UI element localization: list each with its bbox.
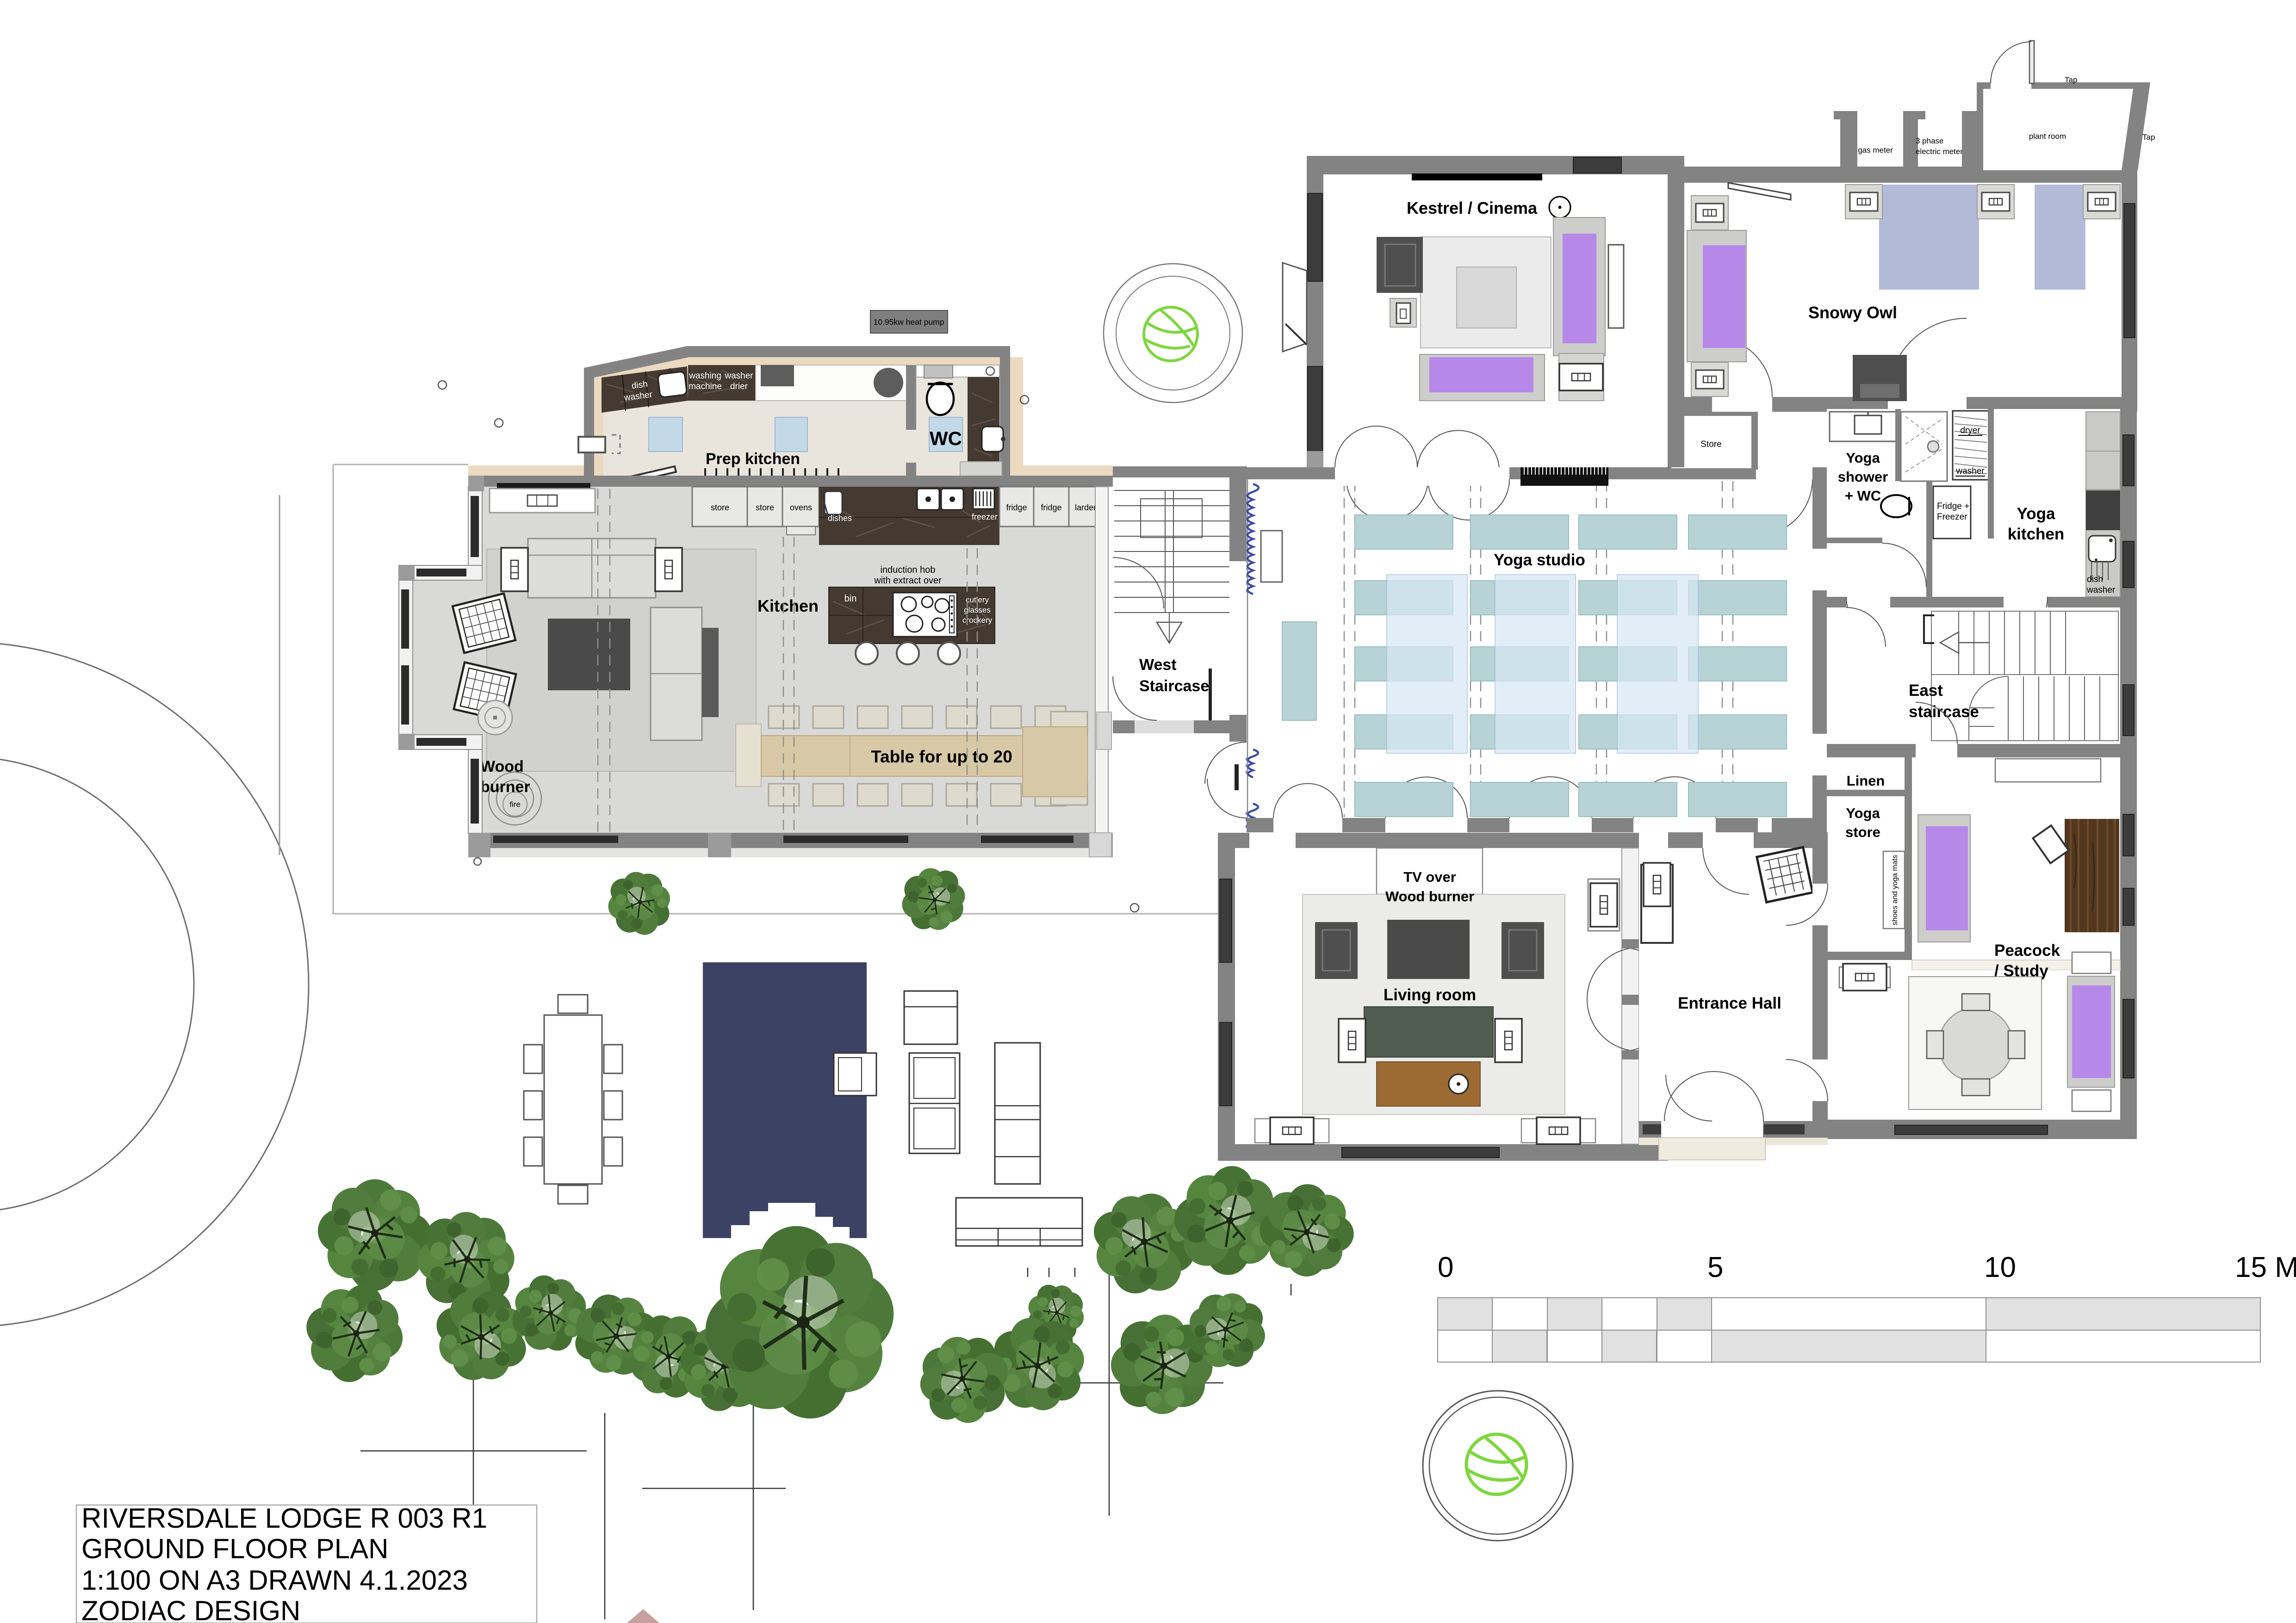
svg-text:Wood burner: Wood burner	[1385, 888, 1474, 904]
svg-text:drier: drier	[730, 382, 748, 391]
svg-text:washer: washer	[724, 371, 753, 381]
svg-text:Yoga: Yoga	[2017, 505, 2056, 523]
svg-text:Prep kitchen: Prep kitchen	[706, 450, 800, 468]
svg-text:freezer: freezer	[972, 512, 998, 521]
svg-text:Fridge +: Fridge +	[1937, 502, 1969, 511]
svg-text:3 phase: 3 phase	[1916, 136, 1944, 145]
svg-text:East: East	[1909, 681, 1943, 700]
svg-text:dryer: dryer	[1960, 426, 1980, 435]
svg-text:burner: burner	[480, 778, 530, 796]
svg-text:Snowy Owl: Snowy Owl	[1808, 303, 1897, 322]
svg-text:fire: fire	[509, 800, 521, 809]
svg-text:ZODIAC DESIGN: ZODIAC DESIGN	[81, 1595, 300, 1623]
svg-text:West: West	[1139, 656, 1177, 674]
svg-text:bin: bin	[844, 594, 857, 604]
svg-text:fridge: fridge	[1006, 503, 1027, 512]
svg-text:washer: washer	[1955, 466, 1985, 476]
svg-text:RIVERSDALE LODGE R 003 R1: RIVERSDALE LODGE R 003 R1	[81, 1503, 487, 1534]
svg-text:Yoga: Yoga	[1846, 805, 1880, 821]
svg-text:Kitchen: Kitchen	[757, 596, 819, 615]
svg-text:Tap: Tap	[2142, 133, 2155, 142]
svg-text:machine: machine	[689, 382, 722, 391]
svg-text:5: 5	[1707, 1251, 1723, 1283]
svg-text:shower: shower	[1838, 469, 1888, 485]
svg-text:gas meter: gas meter	[1858, 146, 1893, 155]
svg-text:store: store	[711, 503, 729, 512]
svg-text:Yoga: Yoga	[1846, 450, 1880, 466]
svg-text:staircase: staircase	[1909, 703, 1979, 721]
svg-text:larder: larder	[1075, 503, 1096, 512]
svg-text:fridge: fridge	[1041, 503, 1061, 512]
svg-text:Linen: Linen	[1847, 773, 1885, 789]
svg-text:store: store	[1845, 824, 1880, 840]
svg-text:10: 10	[1984, 1251, 2016, 1283]
svg-text:with extract over: with extract over	[874, 576, 942, 586]
svg-text:10.95kw heat pump: 10.95kw heat pump	[874, 317, 944, 327]
svg-text:store: store	[756, 503, 774, 512]
svg-text:dish: dish	[2087, 575, 2103, 584]
svg-text:1:100 ON A3 DRAWN 4.1.2023: 1:100 ON A3 DRAWN 4.1.2023	[81, 1565, 468, 1596]
svg-text:+ WC: + WC	[1845, 488, 1881, 504]
svg-text:washer: washer	[2086, 585, 2116, 595]
svg-text:ovens: ovens	[790, 503, 812, 512]
svg-text:WC: WC	[930, 427, 962, 449]
svg-text:0: 0	[1438, 1251, 1453, 1283]
svg-text:shoes and yoga mats: shoes and yoga mats	[1891, 855, 1899, 925]
svg-text:Staircase: Staircase	[1139, 677, 1209, 695]
svg-text:kitchen: kitchen	[2008, 525, 2065, 543]
svg-text:Kestrel / Cinema: Kestrel / Cinema	[1407, 198, 1538, 217]
svg-text:Freezer: Freezer	[1937, 512, 1967, 522]
svg-text:induction hob: induction hob	[881, 565, 936, 575]
svg-text:washing: washing	[689, 371, 721, 381]
svg-text:Store: Store	[1700, 440, 1721, 449]
svg-text:Wood: Wood	[480, 758, 524, 775]
svg-text:Table for up to 20: Table for up to 20	[871, 747, 1012, 766]
svg-text:GROUND FLOOR PLAN: GROUND FLOOR PLAN	[81, 1533, 388, 1564]
svg-text:dish: dish	[631, 379, 648, 391]
svg-text:TV over: TV over	[1403, 869, 1456, 885]
svg-text:dishes: dishes	[828, 514, 852, 523]
svg-text:plant room: plant room	[2029, 132, 2066, 141]
svg-text:Tap: Tap	[2065, 75, 2077, 84]
svg-text:Entrance Hall: Entrance Hall	[1678, 994, 1781, 1012]
svg-text:Living room: Living room	[1384, 986, 1476, 1004]
svg-text:Peacock: Peacock	[1994, 942, 2060, 960]
svg-text:15 M: 15 M	[2235, 1251, 2296, 1283]
svg-text:Yoga studio: Yoga studio	[1494, 551, 1585, 569]
svg-text:electric meter: electric meter	[1916, 147, 1963, 156]
